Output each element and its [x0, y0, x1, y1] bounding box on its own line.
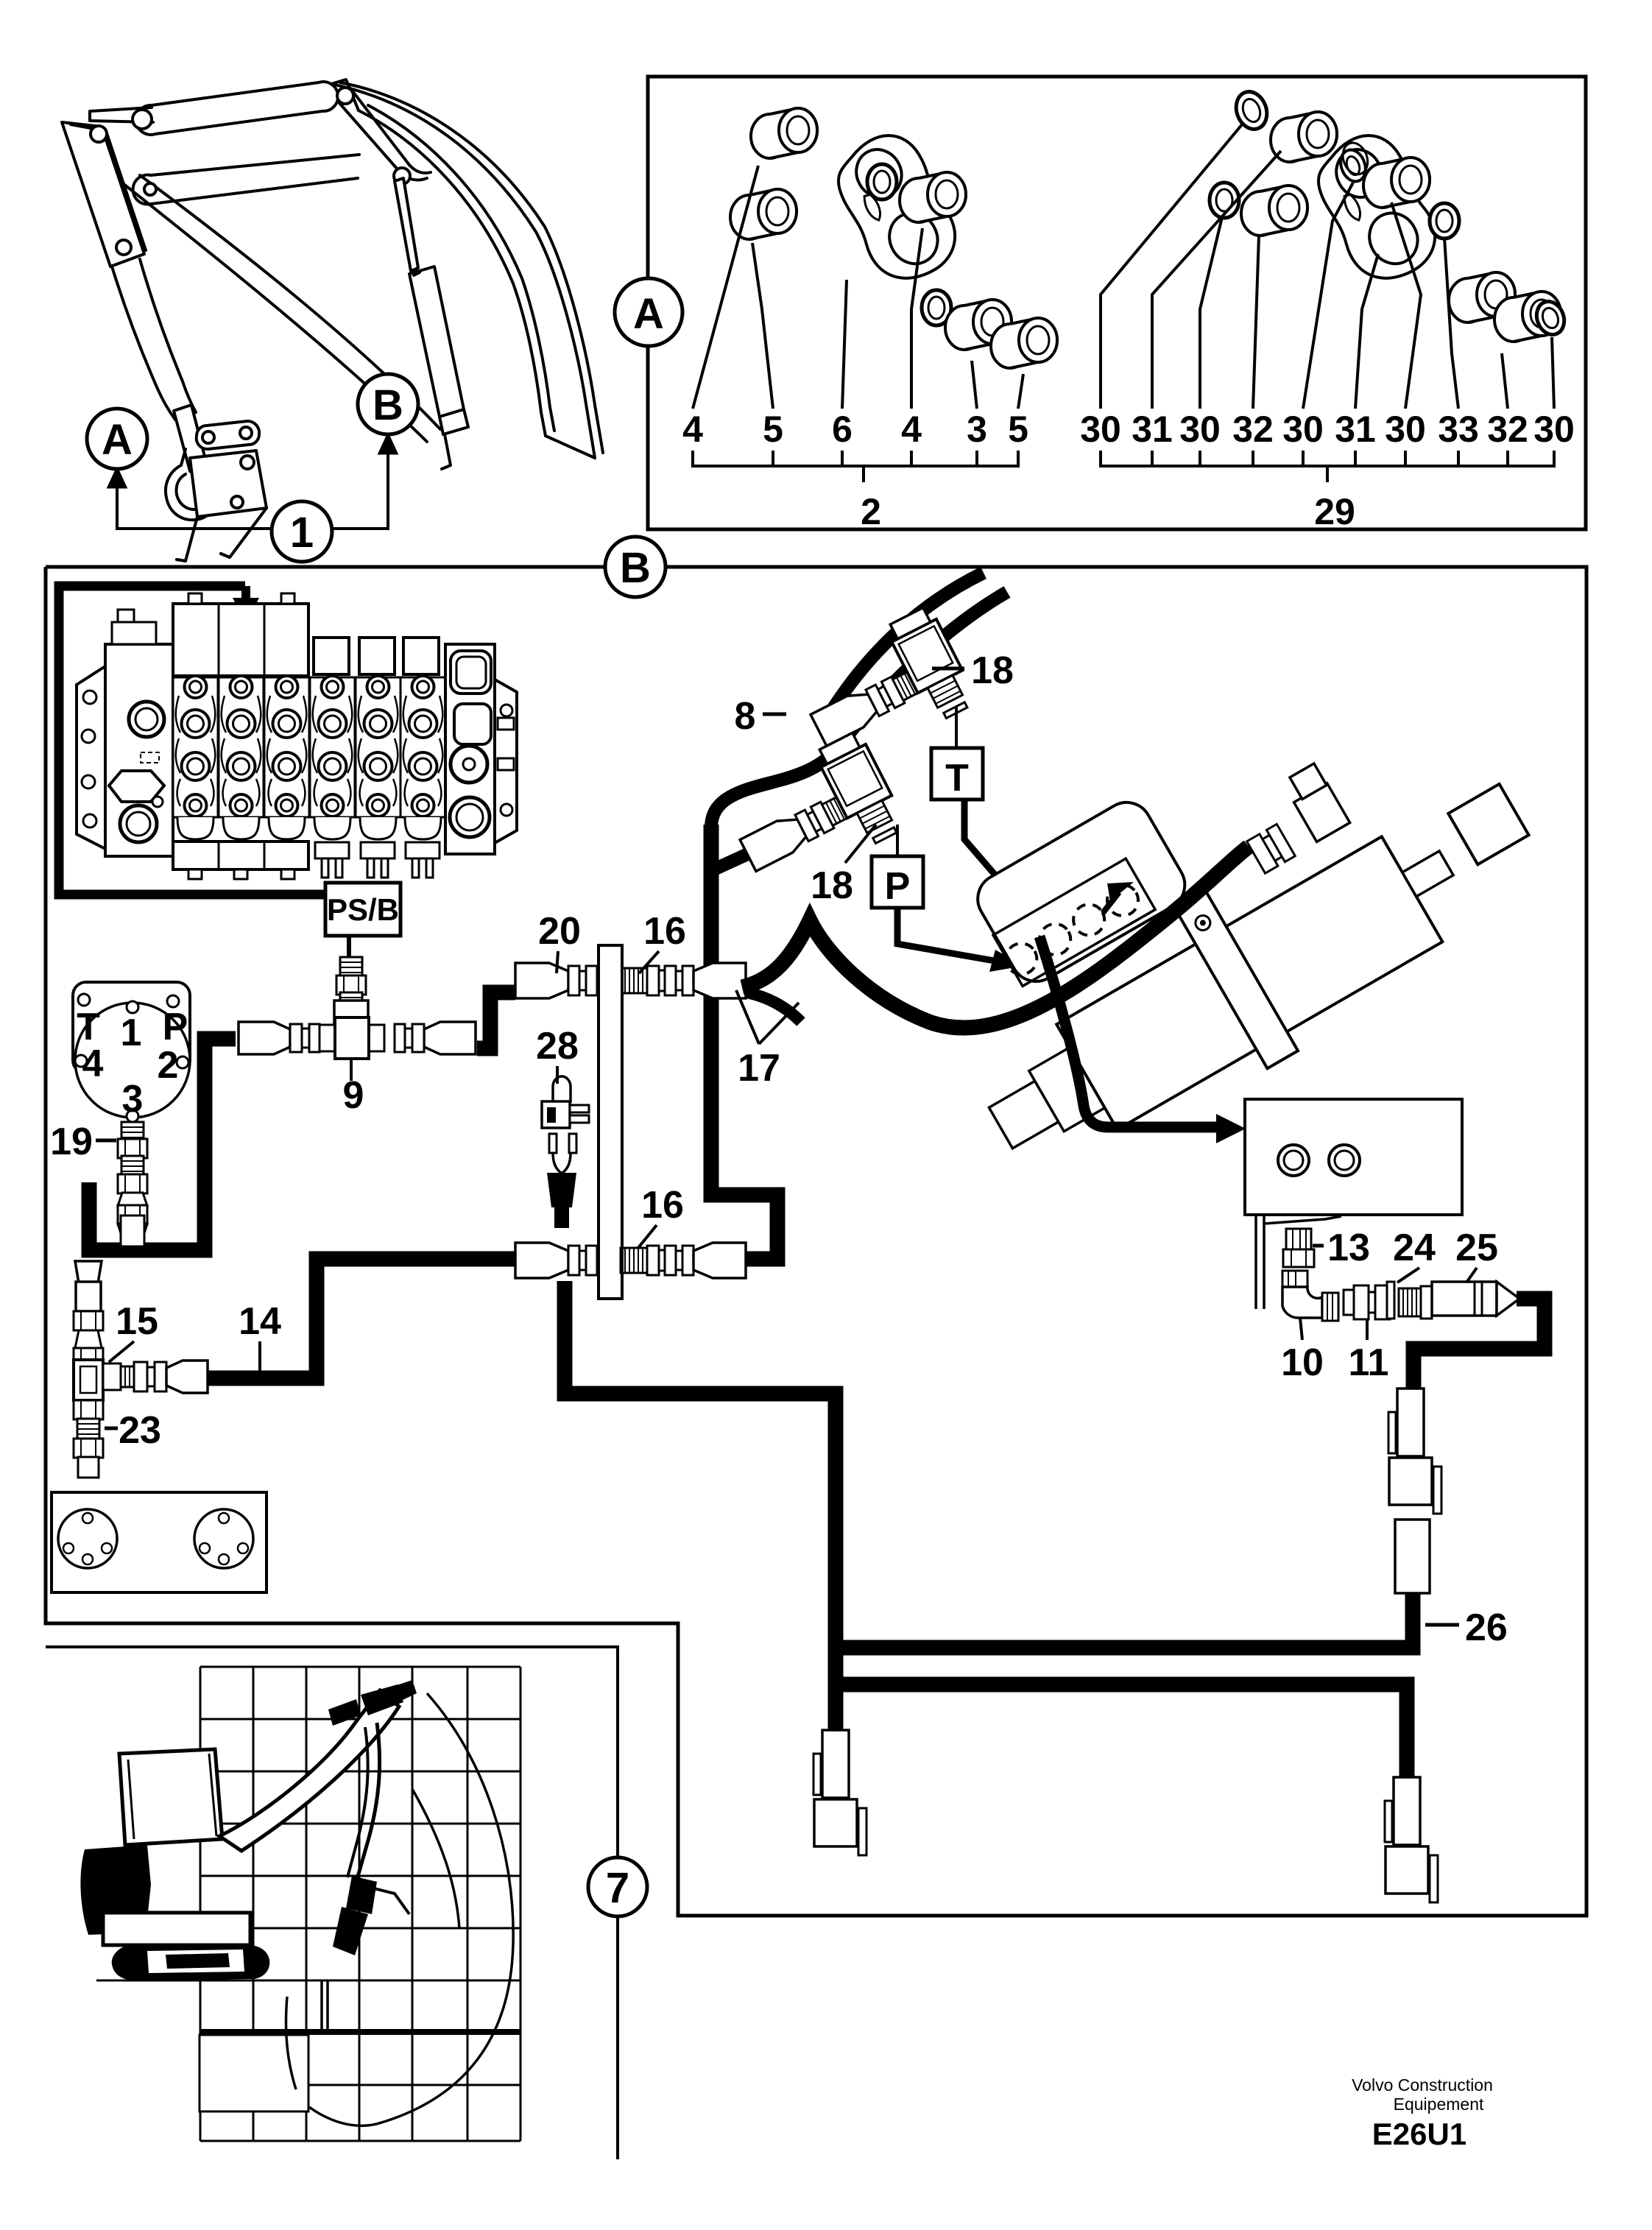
- svg-text:31: 31: [1335, 409, 1376, 450]
- svg-text:2: 2: [861, 491, 881, 532]
- svg-text:32: 32: [1487, 409, 1528, 450]
- svg-text:18: 18: [971, 649, 1014, 692]
- svg-text:Volvo Construction: Volvo Construction: [1352, 2075, 1493, 2095]
- svg-text:23: 23: [119, 1409, 161, 1452]
- svg-text:26: 26: [1465, 1606, 1508, 1649]
- svg-text:30: 30: [1179, 409, 1221, 450]
- svg-text:4: 4: [901, 409, 922, 450]
- svg-text:1: 1: [290, 509, 314, 557]
- svg-text:8: 8: [735, 695, 756, 738]
- svg-text:6: 6: [832, 409, 853, 450]
- svg-text:20: 20: [538, 910, 581, 953]
- svg-text:30: 30: [1385, 409, 1426, 450]
- svg-text:16: 16: [641, 1184, 684, 1227]
- svg-text:E26U1: E26U1: [1372, 2117, 1466, 2151]
- svg-text:30: 30: [1282, 409, 1324, 450]
- svg-text:5: 5: [763, 409, 783, 450]
- svg-text:B: B: [620, 544, 651, 592]
- svg-text:19: 19: [50, 1121, 93, 1163]
- svg-text:13: 13: [1327, 1227, 1370, 1269]
- svg-text:7: 7: [606, 1864, 629, 1912]
- svg-text:30: 30: [1080, 409, 1121, 450]
- svg-text:PS/B: PS/B: [327, 892, 399, 927]
- svg-text:4: 4: [682, 409, 703, 450]
- svg-text:3: 3: [122, 1078, 144, 1121]
- svg-text:1: 1: [121, 1012, 142, 1054]
- svg-text:16: 16: [643, 910, 686, 953]
- svg-text:3: 3: [967, 409, 987, 450]
- svg-text:B: B: [373, 381, 403, 429]
- svg-text:25: 25: [1455, 1227, 1498, 1269]
- svg-text:18: 18: [811, 864, 853, 907]
- svg-text:P: P: [885, 865, 911, 908]
- svg-text:5: 5: [1008, 409, 1028, 450]
- svg-text:30: 30: [1533, 409, 1575, 450]
- svg-text:28: 28: [536, 1025, 579, 1068]
- svg-text:31: 31: [1132, 409, 1173, 450]
- svg-text:4: 4: [82, 1042, 104, 1085]
- svg-text:32: 32: [1232, 409, 1274, 450]
- svg-text:Equipement: Equipement: [1394, 2095, 1484, 2114]
- svg-text:11: 11: [1349, 1341, 1389, 1384]
- svg-text:P: P: [163, 1006, 188, 1048]
- svg-text:A: A: [633, 290, 664, 338]
- svg-text:24: 24: [1393, 1227, 1436, 1269]
- svg-text:A: A: [102, 416, 133, 464]
- svg-text:9: 9: [343, 1074, 364, 1117]
- svg-text:15: 15: [116, 1300, 158, 1343]
- svg-text:2: 2: [158, 1044, 179, 1087]
- svg-text:T: T: [945, 757, 969, 800]
- svg-text:10: 10: [1281, 1341, 1324, 1384]
- svg-text:17: 17: [738, 1047, 780, 1090]
- svg-text:14: 14: [239, 1300, 281, 1343]
- svg-text:29: 29: [1314, 491, 1355, 532]
- svg-text:33: 33: [1438, 409, 1479, 450]
